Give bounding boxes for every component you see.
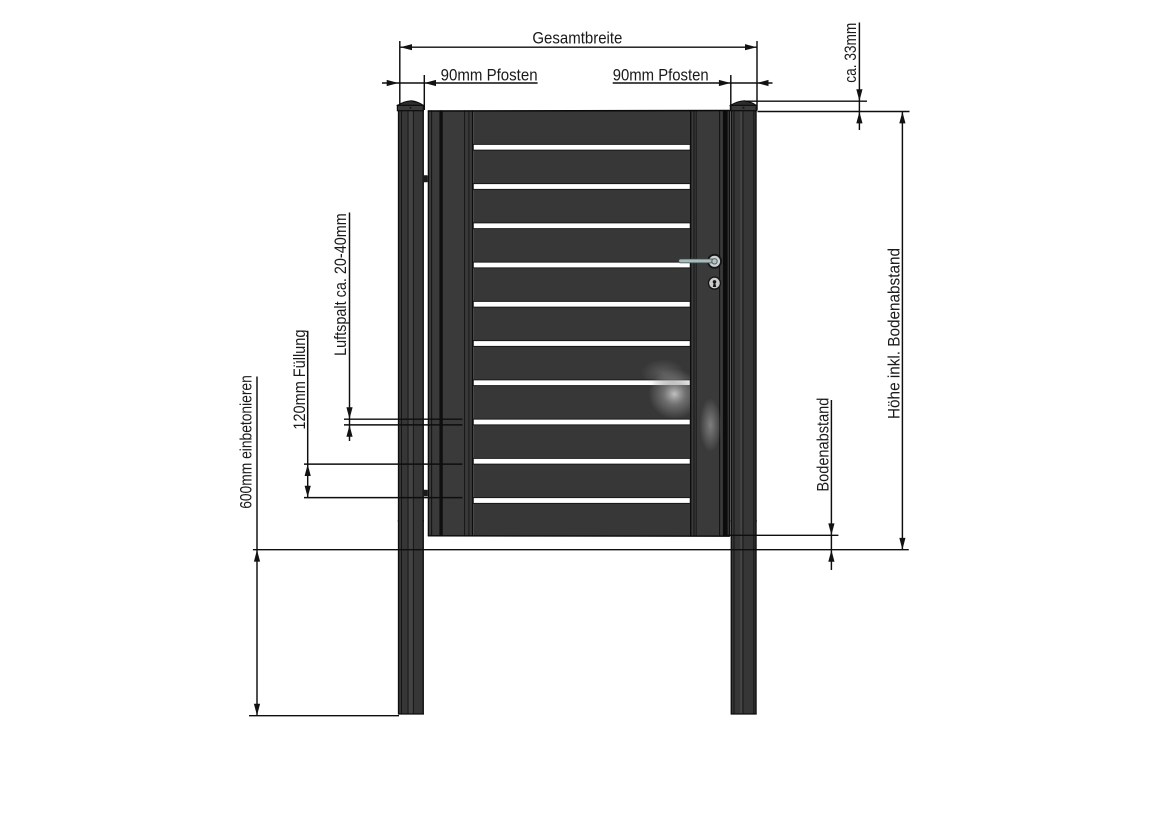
svg-text:90mm Pfosten: 90mm Pfosten: [441, 67, 538, 85]
svg-text:Bodenabstand: Bodenabstand: [815, 398, 833, 492]
svg-text:Gesamtbreite: Gesamtbreite: [532, 29, 622, 47]
svg-text:600mm einbetonieren: 600mm einbetonieren: [238, 375, 256, 509]
svg-text:120mm Füllung: 120mm Füllung: [291, 330, 309, 430]
svg-text:Luftspalt ca. 20-40mm: Luftspalt ca. 20-40mm: [332, 213, 350, 356]
svg-text:Höhe inkl. Bodenabstand: Höhe inkl. Bodenabstand: [886, 248, 904, 419]
svg-text:90mm Pfosten: 90mm Pfosten: [613, 67, 709, 85]
svg-text:ca. 33mm: ca. 33mm: [842, 23, 860, 83]
